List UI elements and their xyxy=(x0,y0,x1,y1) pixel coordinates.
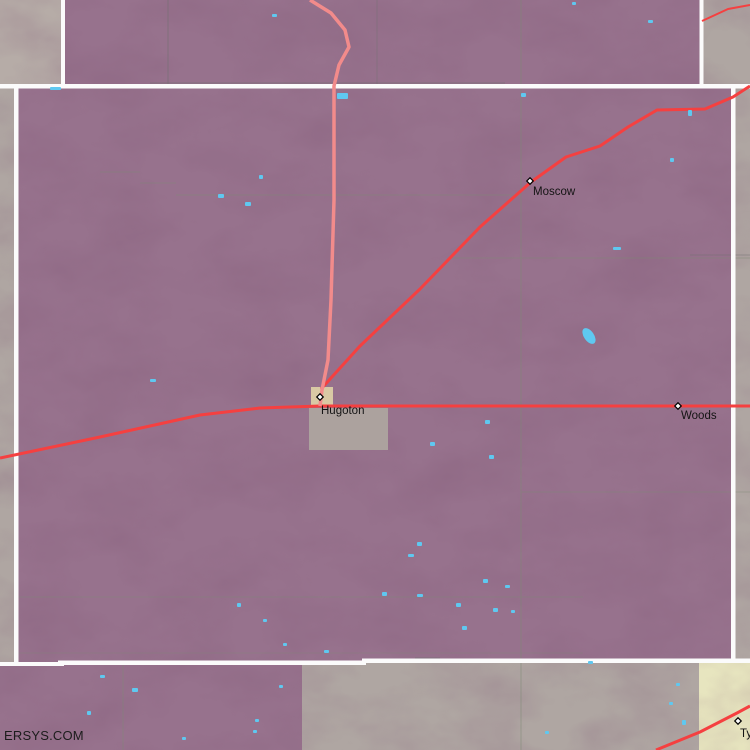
lake-dot xyxy=(87,711,91,715)
lake-dot xyxy=(237,603,241,607)
lake-dot xyxy=(218,194,224,198)
lake-dot xyxy=(462,626,467,630)
lake-dot xyxy=(255,719,259,722)
lake-dot xyxy=(430,442,435,446)
lake-dot xyxy=(456,603,461,607)
lake-dot xyxy=(283,643,287,646)
lake-dot xyxy=(648,20,653,23)
county-boundary-line xyxy=(731,85,736,661)
lake-dot xyxy=(669,702,673,705)
town-label-woods: Woods xyxy=(681,410,717,422)
lake-dot xyxy=(100,675,105,678)
lake-dot xyxy=(417,594,423,597)
lake-dot xyxy=(417,542,422,546)
town-label-moscow: Moscow xyxy=(533,186,576,198)
county-boundary-line xyxy=(14,86,19,664)
town-label-ty: Ty xyxy=(740,728,750,740)
lake-dot xyxy=(521,93,526,97)
lake-dot xyxy=(682,720,686,725)
county-boundary-line xyxy=(0,84,750,89)
lake-dot xyxy=(253,730,257,733)
lake-dot xyxy=(150,379,156,382)
lake-dot xyxy=(50,87,61,90)
lake-dot xyxy=(263,619,267,622)
county-boundary-line xyxy=(700,0,704,86)
lake-dot xyxy=(259,175,263,179)
lake-dot xyxy=(279,685,283,688)
county-boundary-line xyxy=(61,0,65,86)
lake-dot xyxy=(670,158,674,162)
terrain-texture xyxy=(0,0,750,750)
map-canvas[interactable]: MoscowHugotonWoodsTy ERSYS.COM xyxy=(0,0,750,750)
lake-dot xyxy=(245,202,251,206)
county-boundary-line xyxy=(0,662,64,666)
county-boundary-line xyxy=(58,661,366,666)
lake-dot xyxy=(588,661,593,664)
lake-dot xyxy=(324,650,329,653)
lake-dot xyxy=(483,579,488,583)
lake-dot xyxy=(337,93,348,99)
county-boundary-line xyxy=(362,659,750,664)
lake-dot xyxy=(511,610,515,613)
watermark-text: ERSYS.COM xyxy=(4,728,84,743)
lake-dot xyxy=(505,585,510,588)
lake-dot xyxy=(489,455,494,459)
town-label-hugoton: Hugoton xyxy=(321,405,364,417)
lake-dot xyxy=(272,14,277,17)
lake-dot xyxy=(132,688,138,692)
lake-dot xyxy=(688,110,692,116)
county-map[interactable]: MoscowHugotonWoodsTy xyxy=(0,0,750,750)
lake-dot xyxy=(485,420,490,424)
lake-dot xyxy=(408,554,414,557)
lake-dot xyxy=(382,592,387,596)
lake-dot xyxy=(572,2,576,5)
lake-dot xyxy=(613,247,621,250)
lake-dot xyxy=(182,737,186,740)
lake-dot xyxy=(676,683,680,686)
lake-dot xyxy=(545,731,549,734)
lake-dot xyxy=(493,608,498,612)
